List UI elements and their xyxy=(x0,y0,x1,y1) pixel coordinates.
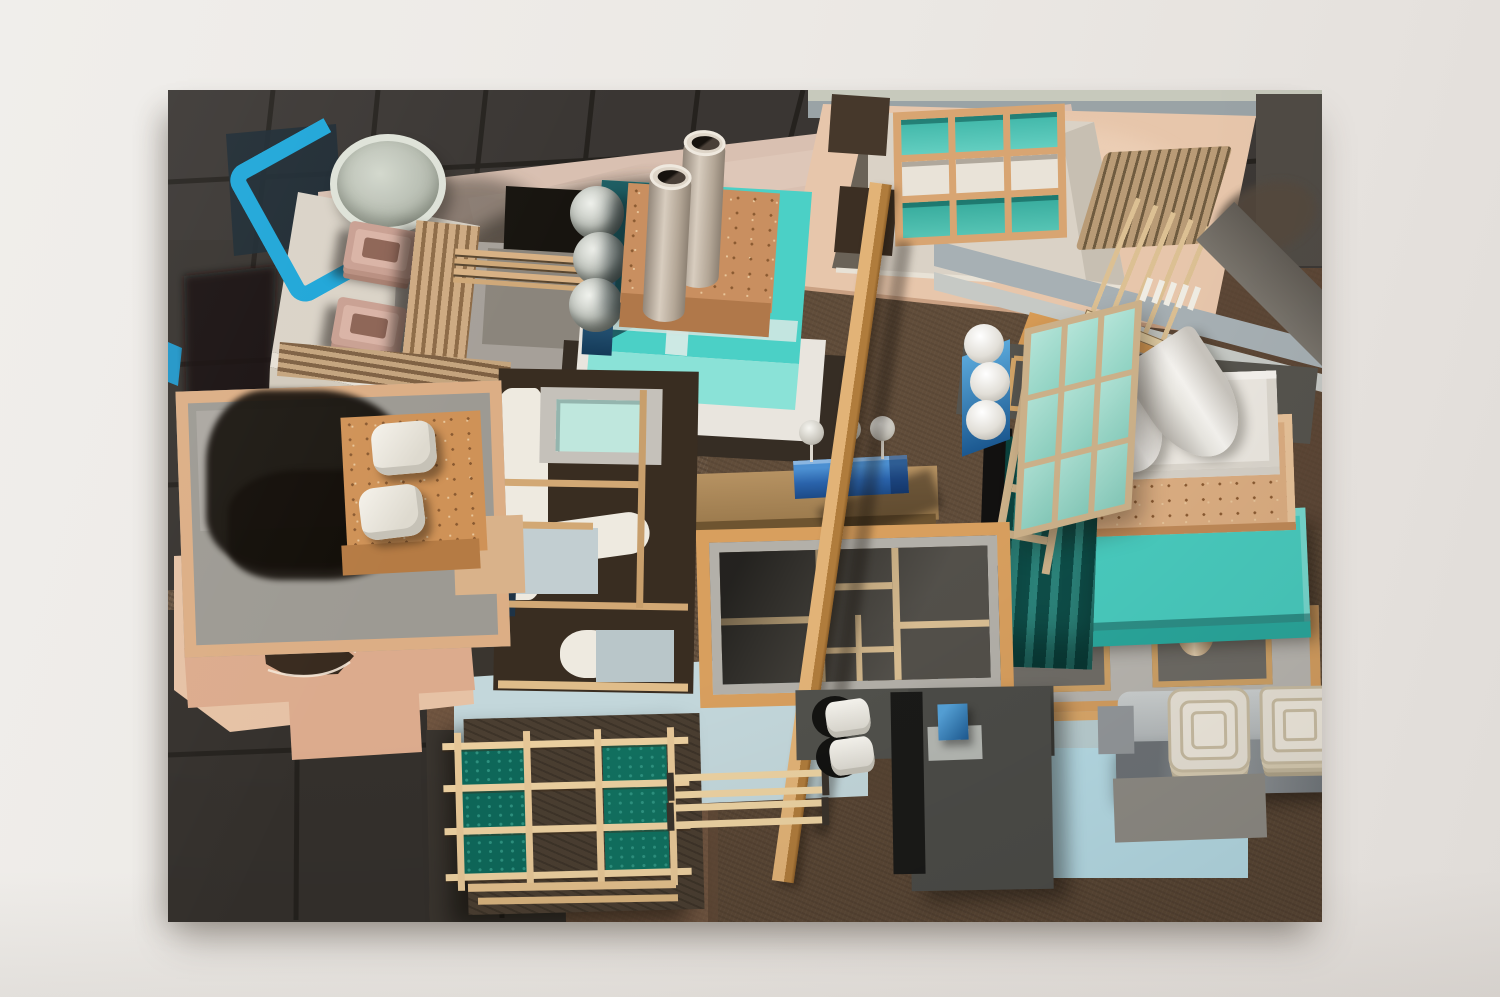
cylinder-cup xyxy=(330,134,446,234)
glass-pane xyxy=(1028,326,1062,395)
glass-pane xyxy=(1025,394,1059,463)
skylight-pane-cream xyxy=(956,156,1004,193)
slate-gamma-panel-leg xyxy=(908,687,1054,891)
chimney-tube xyxy=(642,171,692,323)
tray-stack-step xyxy=(1191,711,1228,750)
ground-window-frame xyxy=(454,737,680,883)
skylight-pane-cream xyxy=(902,159,950,196)
board-teal-pane xyxy=(556,399,647,453)
blue-box-small xyxy=(937,703,968,740)
glass-pane xyxy=(1065,317,1099,386)
ladder-rails-pair xyxy=(674,769,823,798)
black-strip xyxy=(890,692,925,875)
cork-pillow xyxy=(370,419,438,476)
skylight-pane-cream xyxy=(1010,154,1058,191)
opening-floor-lightblue xyxy=(596,630,674,682)
peg xyxy=(1163,282,1177,307)
tray-stack xyxy=(1167,687,1250,772)
glass-pane xyxy=(1021,461,1055,530)
appliance-left-step xyxy=(1098,706,1135,755)
cork-pillow xyxy=(357,482,427,541)
tray-slot xyxy=(350,313,389,339)
skylight-pane-teal xyxy=(955,115,1003,152)
skylight-pane-teal xyxy=(1010,112,1058,149)
white-sphere xyxy=(970,362,1010,402)
white-sphere xyxy=(966,400,1006,440)
tray-stack xyxy=(1259,685,1322,764)
rail-endcap xyxy=(667,773,675,801)
tube-inner-dark xyxy=(657,169,686,184)
tree-pin-ball xyxy=(799,420,824,445)
glass-pane xyxy=(1058,452,1092,521)
tray-stack-step xyxy=(1179,699,1238,760)
peg xyxy=(1175,284,1189,309)
rail-endcap xyxy=(821,797,829,825)
white-roll xyxy=(828,735,877,777)
tray-slot xyxy=(362,237,401,263)
tray-step xyxy=(350,228,411,271)
ladder-rails-pair xyxy=(674,799,823,828)
skylight-grid xyxy=(893,103,1067,246)
painting-canvas xyxy=(168,90,1322,922)
glass-pane xyxy=(1061,385,1095,454)
tube-inner-dark xyxy=(691,135,720,150)
window-pane-green xyxy=(460,747,527,875)
skylight-pane-teal xyxy=(957,198,1005,235)
skylight-pane-teal xyxy=(903,201,951,238)
tray-stack-step xyxy=(1272,698,1322,753)
glass-pane xyxy=(1094,443,1128,512)
gray-slab-bottom-right xyxy=(1113,773,1267,842)
white-sphere xyxy=(964,324,1004,364)
glass-pane xyxy=(1098,375,1132,444)
gray-sphere xyxy=(569,278,623,332)
white-roll xyxy=(824,697,873,739)
glass-pane xyxy=(1101,308,1135,377)
peg xyxy=(1151,279,1165,304)
skylight-pane-teal xyxy=(901,118,949,155)
tray-step xyxy=(338,304,399,347)
leaning-glass-panel xyxy=(1014,299,1143,538)
tray-stack-step xyxy=(1283,709,1318,742)
skylight-pane-teal xyxy=(1011,195,1059,232)
rail-endcap xyxy=(667,803,675,831)
window-pane-green xyxy=(602,743,669,871)
